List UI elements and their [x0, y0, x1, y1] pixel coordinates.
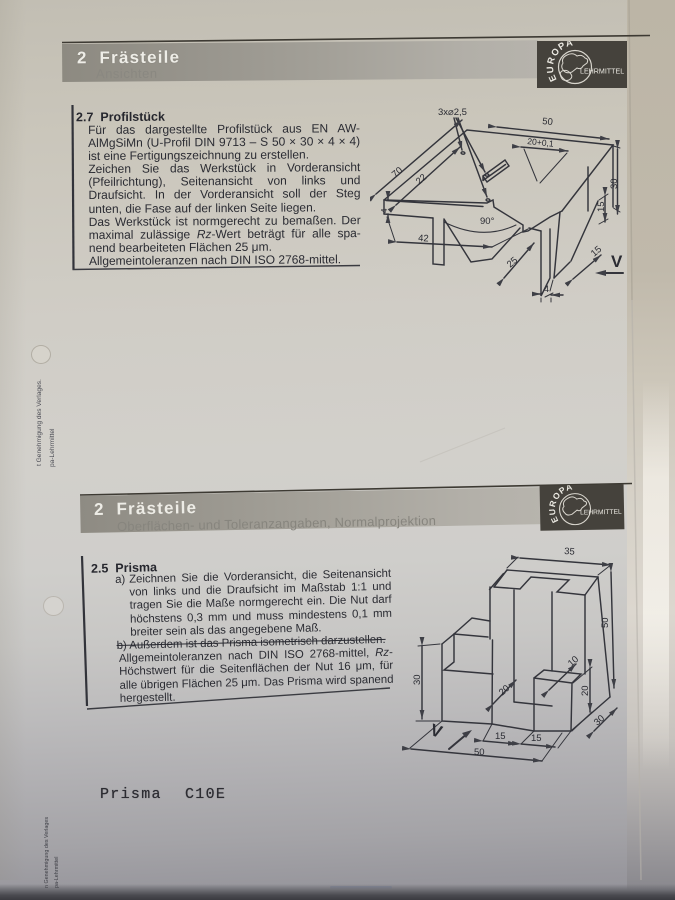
svg-text:30: 30 [592, 713, 607, 728]
svg-text:50: 50 [600, 617, 611, 628]
svg-text:15: 15 [531, 733, 542, 744]
svg-text:10: 10 [566, 654, 581, 669]
svg-text:30: 30 [412, 674, 423, 685]
svg-text:LEHRMITTEL: LEHRMITTEL [580, 509, 622, 517]
svg-text:35: 35 [564, 546, 575, 558]
svg-text:50: 50 [474, 747, 485, 758]
svg-text:20: 20 [580, 685, 591, 696]
svg-text:20: 20 [497, 683, 512, 698]
svg-text:15: 15 [495, 731, 506, 742]
svg-text:V: V [428, 720, 445, 742]
